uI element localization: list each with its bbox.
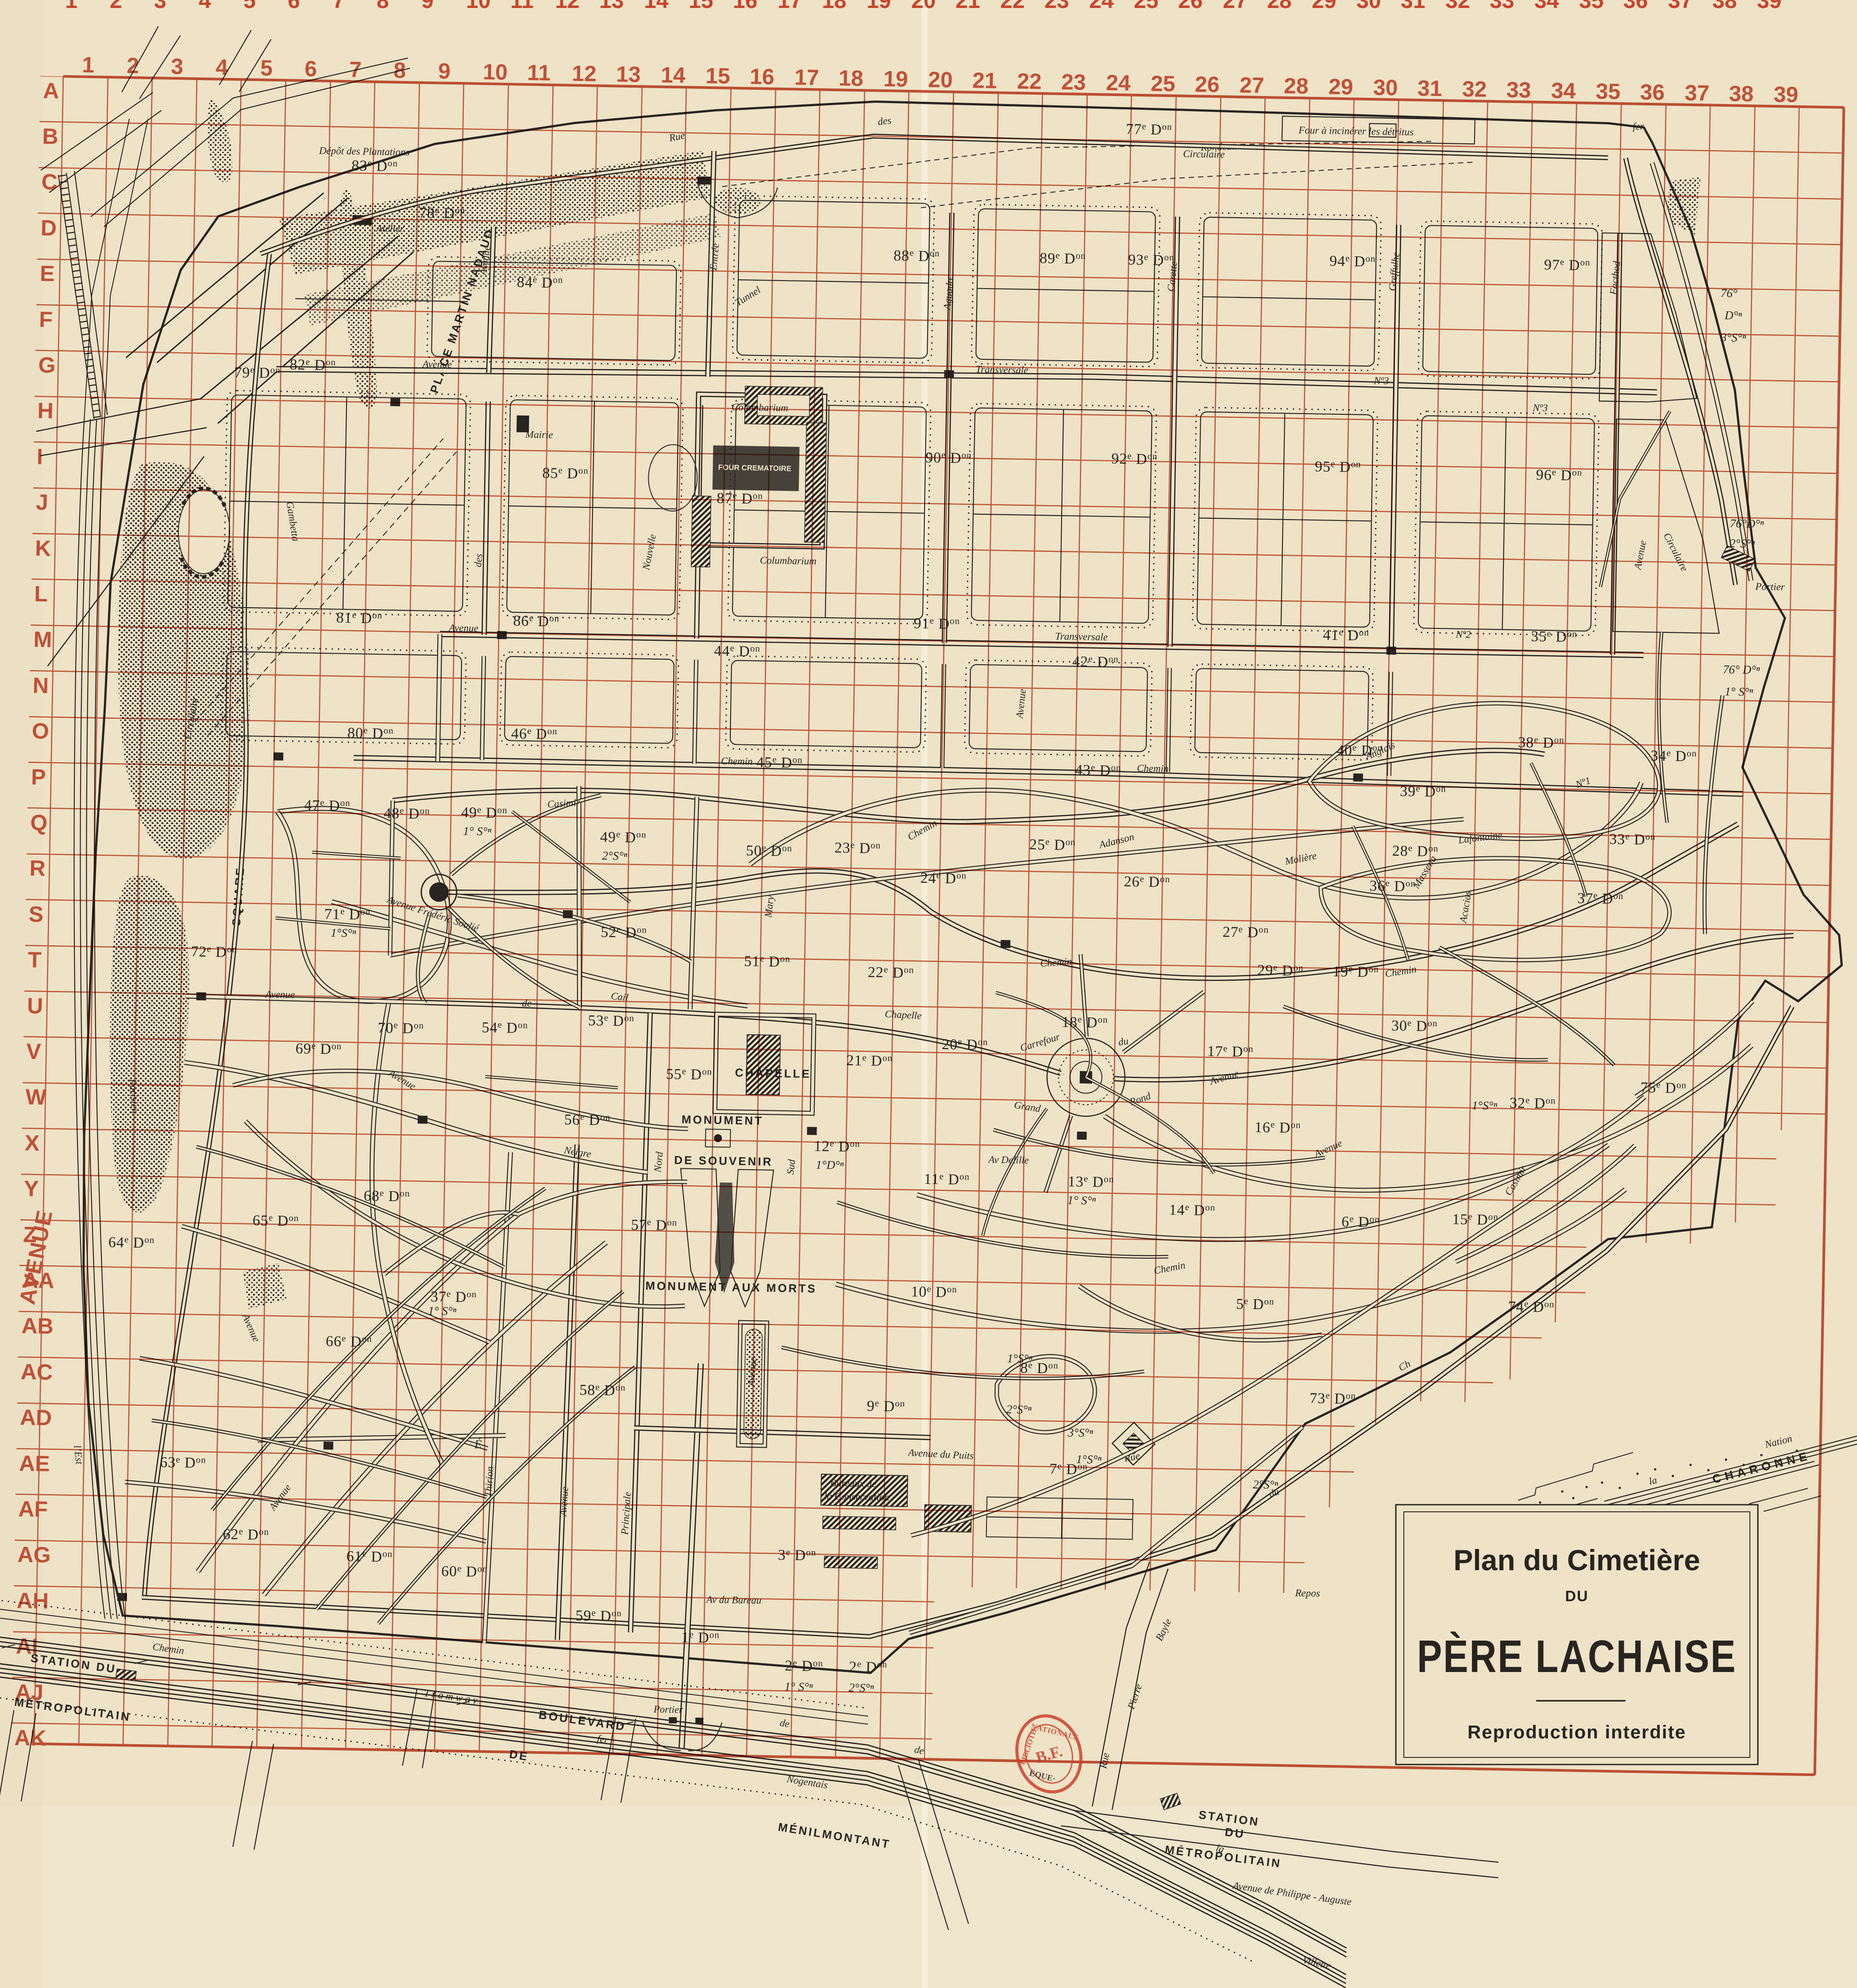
svg-text:AE: AE [19, 1451, 50, 1476]
svg-text:Atelier: Atelier [375, 223, 405, 234]
svg-text:T: T [28, 947, 42, 972]
svg-text:22: 22 [1017, 69, 1042, 94]
svg-text:2°S°ⁿ: 2°S°ⁿ [1730, 536, 1755, 550]
svg-text:Transversale: Transversale [975, 364, 1028, 376]
svg-text:9: 9 [438, 58, 451, 83]
svg-text:Q: Q [30, 810, 48, 836]
svg-text:AK: AK [14, 1725, 46, 1750]
svg-text:des: des [472, 553, 485, 568]
svg-text:des: des [877, 115, 892, 127]
svg-text:27: 27 [1223, 0, 1248, 13]
svg-text:W: W [25, 1084, 47, 1110]
svg-text:11: 11 [527, 60, 551, 85]
svg-text:AD: AD [20, 1405, 52, 1430]
svg-text:30: 30 [1373, 75, 1398, 100]
svg-text:É: É [474, 1437, 482, 1451]
svg-text:17: 17 [794, 65, 820, 90]
svg-text:de: de [779, 1717, 790, 1730]
svg-text:Transversale: Transversale [1055, 631, 1108, 643]
svg-text:10: 10 [466, 0, 491, 13]
svg-text:M: M [33, 627, 52, 652]
svg-text:37: 37 [1684, 81, 1710, 106]
svg-text:1° S°ⁿ: 1° S°ⁿ [1067, 1194, 1096, 1207]
svg-text:36: 36 [1640, 80, 1665, 105]
svg-text:6: 6 [288, 0, 300, 13]
svg-text:33: 33 [1490, 0, 1514, 13]
svg-text:Four à incinérer les détritus: Four à incinérer les détritus [1298, 124, 1414, 138]
svg-text:Repos: Repos [1295, 1587, 1320, 1599]
svg-text:Plan du Cimetière: Plan du Cimetière [1453, 1544, 1700, 1576]
svg-text:G: G [38, 353, 56, 378]
svg-text:7: 7 [332, 0, 345, 13]
svg-text:Columbarium: Columbarium [760, 555, 817, 566]
svg-text:20: 20 [928, 67, 953, 92]
svg-text:J: J [36, 490, 49, 515]
svg-text:19: 19 [867, 0, 891, 13]
svg-text:Mairie: Mairie [525, 429, 553, 440]
svg-text:17: 17 [778, 0, 802, 13]
svg-text:18: 18 [839, 65, 864, 91]
svg-text:S: S [28, 902, 43, 927]
svg-text:32: 32 [1462, 77, 1487, 102]
svg-text:7: 7 [349, 57, 362, 82]
svg-text:13: 13 [599, 0, 624, 13]
svg-text:MONUMENT: MONUMENT [682, 1113, 764, 1127]
svg-text:DU: DU [1224, 1825, 1246, 1841]
svg-text:39: 39 [1773, 82, 1799, 107]
svg-text:du: du [1117, 1035, 1129, 1048]
svg-text:24: 24 [1089, 0, 1114, 13]
svg-text:12: 12 [572, 61, 597, 86]
svg-text:1°S°ⁿ: 1°S°ⁿ [1076, 1452, 1102, 1466]
svg-text:15: 15 [705, 63, 731, 89]
svg-text:29: 29 [1312, 0, 1337, 13]
svg-text:fer: fer [1633, 121, 1645, 132]
svg-text:DU: DU [1565, 1588, 1588, 1605]
svg-text:10: 10 [483, 59, 508, 85]
svg-text:X: X [24, 1130, 39, 1156]
svg-text:14: 14 [644, 0, 669, 13]
svg-text:6: 6 [304, 56, 317, 81]
svg-text:25: 25 [1134, 0, 1159, 13]
svg-text:3°S°ⁿ: 3°S°ⁿ [1067, 1426, 1093, 1440]
svg-text:8: 8 [377, 0, 389, 13]
svg-text:fer: fer [597, 1733, 610, 1745]
svg-text:Av du Bureau: Av du Bureau [705, 1594, 762, 1606]
svg-text:27: 27 [1239, 73, 1264, 98]
svg-text:3°S°ⁿ: 3°S°ⁿ [1720, 331, 1746, 344]
svg-text:21: 21 [972, 68, 998, 93]
svg-text:AI: AI [15, 1634, 38, 1659]
svg-text:33: 33 [1506, 77, 1531, 102]
svg-text:24: 24 [1106, 70, 1131, 96]
svg-text:23: 23 [1061, 69, 1086, 95]
svg-text:E: E [40, 261, 55, 286]
svg-text:Sud: Sud [785, 1159, 798, 1175]
svg-text:28: 28 [1283, 73, 1309, 99]
svg-text:26: 26 [1178, 0, 1203, 13]
svg-text:R: R [29, 856, 46, 881]
svg-text:1: 1 [82, 52, 95, 77]
svg-text:V: V [26, 1039, 42, 1064]
svg-text:26: 26 [1194, 72, 1220, 97]
svg-text:D°ⁿ: D°ⁿ [1724, 308, 1742, 322]
svg-text:Av Delille: Av Delille [987, 1154, 1029, 1166]
svg-text:AG: AG [17, 1542, 51, 1567]
svg-text:28: 28 [1267, 0, 1292, 13]
svg-text:5: 5 [260, 55, 273, 80]
svg-text:la Conservation: la Conservation [824, 1491, 890, 1503]
svg-text:2°S°ⁿ: 2°S°ⁿ [1253, 1478, 1279, 1491]
svg-text:Nº3: Nº3 [1373, 375, 1389, 386]
svg-text:CHAPELLE: CHAPELLE [735, 1066, 812, 1080]
svg-text:AH: AH [16, 1588, 49, 1613]
svg-text:4: 4 [216, 55, 228, 80]
svg-text:Circulaire: Circulaire [1183, 148, 1225, 160]
svg-text:13: 13 [616, 62, 641, 87]
svg-text:Chemin: Chemin [721, 755, 753, 767]
svg-text:Portier: Portier [1755, 581, 1785, 592]
svg-text:15: 15 [689, 0, 713, 13]
svg-text:Avenue: Avenue [745, 1357, 759, 1388]
svg-text:38: 38 [1712, 0, 1737, 13]
svg-text:14: 14 [661, 62, 686, 88]
svg-text:8: 8 [393, 58, 406, 83]
svg-text:2: 2 [127, 53, 139, 78]
svg-text:C: C [41, 170, 58, 195]
svg-text:22: 22 [1000, 0, 1025, 13]
svg-text:21: 21 [955, 0, 980, 13]
svg-text:1: 1 [65, 0, 77, 13]
svg-text:D: D [40, 216, 57, 241]
svg-text:1°S°ⁿ: 1°S°ⁿ [331, 926, 356, 940]
svg-text:F: F [39, 307, 53, 332]
svg-text:3: 3 [171, 54, 184, 79]
svg-text:9: 9 [421, 0, 434, 13]
svg-text:31: 31 [1401, 0, 1425, 13]
svg-text:35: 35 [1579, 0, 1604, 13]
svg-text:PÈRE LACHAISE: PÈRE LACHAISE [1417, 1631, 1737, 1682]
svg-text:29: 29 [1328, 74, 1353, 99]
svg-text:5: 5 [243, 0, 256, 13]
svg-text:Dépôt des Plantations: Dépôt des Plantations [319, 145, 410, 158]
svg-text:34: 34 [1534, 0, 1559, 13]
svg-text:1° S°ⁿ: 1° S°ⁿ [463, 824, 492, 838]
svg-text:U: U [27, 993, 43, 1018]
svg-text:32: 32 [1445, 0, 1470, 13]
svg-text:Nº2: Nº2 [1455, 629, 1471, 640]
svg-text:Colombarium: Colombarium [732, 401, 788, 413]
svg-text:37: 37 [1668, 0, 1693, 13]
svg-text:Chemin: Chemin [1040, 955, 1072, 969]
svg-text:AB: AB [21, 1313, 54, 1338]
svg-text:B: B [42, 124, 58, 149]
svg-text:Reproduction interdite: Reproduction interdite [1468, 1722, 1686, 1742]
svg-text:A: A [43, 78, 59, 104]
svg-text:Chapelle: Chapelle [885, 1008, 922, 1021]
svg-text:1°S°ⁿ: 1°S°ⁿ [1472, 1098, 1498, 1112]
svg-text:36: 36 [1623, 0, 1648, 13]
svg-text:11: 11 [510, 0, 534, 13]
svg-text:30: 30 [1356, 0, 1381, 13]
svg-text:H: H [37, 398, 54, 424]
svg-text:AF: AF [18, 1496, 48, 1522]
svg-text:23: 23 [1044, 0, 1069, 13]
svg-text:O: O [32, 719, 50, 744]
svg-text:K: K [35, 536, 51, 561]
svg-text:Avenue: Avenue [557, 1486, 570, 1517]
svg-text:76° D°ⁿ: 76° D°ⁿ [1723, 663, 1760, 676]
svg-text:39: 39 [1757, 0, 1782, 13]
svg-text:25: 25 [1150, 71, 1175, 96]
svg-text:AJ: AJ [15, 1680, 44, 1705]
svg-text:18: 18 [822, 0, 847, 13]
svg-text:I: I [36, 444, 43, 469]
svg-text:1° S°ⁿ: 1° S°ⁿ [1725, 685, 1753, 698]
svg-text:3: 3 [154, 0, 166, 13]
svg-text:l’Est: l’Est [72, 1445, 85, 1465]
svg-text:DE SOUVENIR: DE SOUVENIR [674, 1153, 773, 1168]
svg-text:Avenue: Avenue [421, 358, 452, 370]
svg-text:19: 19 [883, 66, 909, 92]
svg-text:L: L [34, 582, 48, 607]
svg-text:Casimir: Casimir [547, 797, 581, 810]
svg-text:16: 16 [733, 0, 758, 13]
svg-text:1°D°ⁿ: 1°D°ⁿ [816, 1158, 844, 1172]
svg-text:38: 38 [1729, 81, 1754, 106]
svg-text:FOUR CREMATOIRE: FOUR CREMATOIRE [718, 463, 792, 473]
svg-text:P: P [31, 765, 46, 790]
svg-text:12: 12 [555, 0, 580, 13]
svg-text:Bureaux de: Bureaux de [830, 1477, 876, 1489]
svg-text:20: 20 [911, 0, 936, 13]
svg-text:35: 35 [1595, 79, 1621, 104]
svg-text:Nord: Nord [652, 1151, 665, 1173]
svg-text:4: 4 [199, 0, 211, 13]
svg-text:2°S°ⁿ: 2°S°ⁿ [602, 849, 628, 863]
svg-text:34: 34 [1551, 78, 1576, 103]
svg-text:Nº3: Nº3 [1532, 402, 1548, 414]
svg-text:31: 31 [1417, 76, 1442, 101]
svg-text:N: N [32, 673, 49, 698]
svg-text:16: 16 [750, 64, 775, 89]
svg-text:Y: Y [24, 1176, 39, 1201]
svg-text:Avenue: Avenue [265, 989, 295, 1000]
svg-text:AC: AC [20, 1359, 53, 1384]
svg-text:2: 2 [110, 0, 122, 13]
